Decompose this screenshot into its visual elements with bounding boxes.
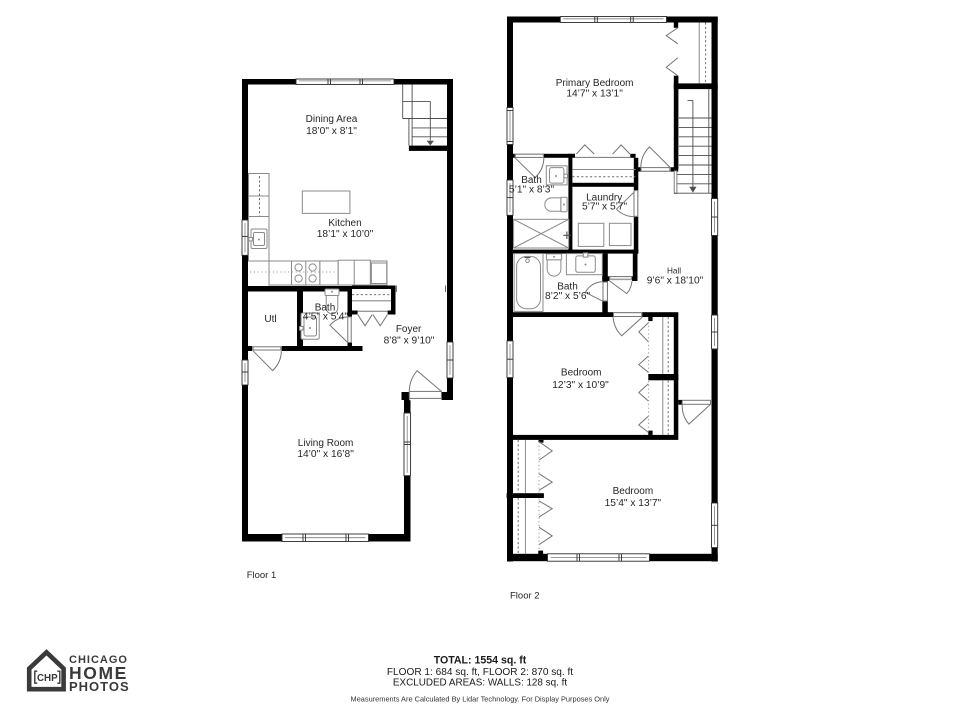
svg-text:CHP: CHP xyxy=(37,673,58,684)
svg-text:12’3" x 10’9": 12’3" x 10’9" xyxy=(552,380,609,391)
svg-text:EXCLUDED AREAS: WALLS: 128 sq.: EXCLUDED AREAS: WALLS: 128 sq. ft xyxy=(393,677,567,688)
svg-text:Bedroom: Bedroom xyxy=(561,368,602,379)
svg-text:Bedroom: Bedroom xyxy=(613,486,654,497)
svg-text:TOTAL: 1554 sq. ft: TOTAL: 1554 sq. ft xyxy=(434,654,527,666)
svg-text:Floor 1: Floor 1 xyxy=(247,570,277,581)
svg-text:PHOTOS: PHOTOS xyxy=(69,679,130,694)
svg-text:18’1" x 10’0": 18’1" x 10’0" xyxy=(317,229,374,240)
svg-text:Utl: Utl xyxy=(264,314,276,325)
svg-text:Living Room: Living Room xyxy=(298,438,354,449)
svg-text:Hall: Hall xyxy=(667,266,681,275)
svg-text:Measurements Are Calculated By: Measurements Are Calculated By Lidar Tec… xyxy=(351,695,610,704)
svg-text:5’7" x 5’7": 5’7" x 5’7" xyxy=(582,202,628,213)
svg-text:15’4" x 13’7": 15’4" x 13’7" xyxy=(605,498,662,509)
svg-text:Dining Area: Dining Area xyxy=(306,114,358,125)
svg-text:5’1" x 8’3": 5’1" x 8’3" xyxy=(509,185,555,196)
svg-text:8’8" x 9’10": 8’8" x 9’10" xyxy=(384,336,435,347)
svg-text:Kitchen: Kitchen xyxy=(328,218,361,229)
svg-text:4’5" x 5’4": 4’5" x 5’4" xyxy=(303,312,349,323)
svg-text:14’0" x 16’8": 14’0" x 16’8" xyxy=(297,449,354,460)
svg-text:FLOOR 1: 684 sq. ft, FLOOR 2:: FLOOR 1: 684 sq. ft, FLOOR 2: 870 sq. ft xyxy=(387,667,573,678)
svg-text:14’7" x 13’1": 14’7" x 13’1" xyxy=(566,88,623,99)
svg-text:Floor 2: Floor 2 xyxy=(510,591,540,602)
svg-text:9’6" x 18’10": 9’6" x 18’10" xyxy=(647,276,704,287)
svg-text:18’0" x 8’1": 18’0" x 8’1" xyxy=(306,126,357,137)
svg-text:Foyer: Foyer xyxy=(396,324,422,335)
svg-text:8’2" x 5’6": 8’2" x 5’6" xyxy=(545,291,591,302)
